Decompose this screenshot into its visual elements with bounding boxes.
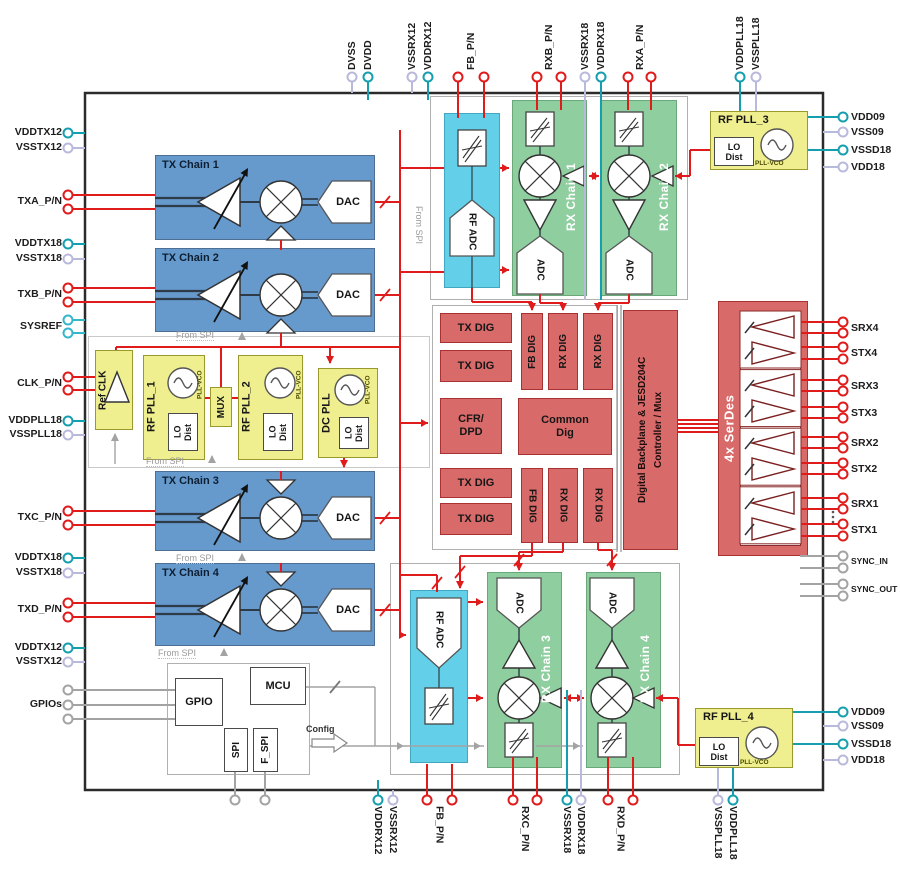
pin-label-vddrx12: VDDRX12 bbox=[370, 806, 386, 870]
dc-pll-label: DC PLL bbox=[320, 370, 334, 456]
ref-clk-label: Ref CLK bbox=[96, 352, 110, 428]
from-spi-label-1: From SPI bbox=[176, 330, 214, 341]
rx-chain-2-label: RX Chain 2 bbox=[655, 102, 673, 292]
gpio-block: GPIO bbox=[175, 678, 223, 726]
pin-label-gpios: GPIOs bbox=[0, 698, 62, 710]
fb-dig-top-label: FB DIG bbox=[527, 335, 538, 369]
dac-1-label: DAC bbox=[326, 192, 370, 212]
from-spi-label-2: From SPI bbox=[146, 456, 184, 467]
pin-label-txc-p-n: TXC_P/N bbox=[0, 511, 62, 523]
pin-label-vddtx18: VDDTX18 bbox=[0, 237, 62, 249]
pin-label-vsstx12: VSSTX12 bbox=[0, 655, 62, 667]
pin-label-vsspll18: VSSPLL18 bbox=[710, 806, 726, 870]
pin-label-vssrx18: VSSRX18 bbox=[577, 4, 593, 70]
rx-dig-bottom-2: RX DIG bbox=[583, 468, 613, 543]
cfr-dpd-label: CFR/ DPD bbox=[458, 413, 484, 438]
serdes-label: 4x SerDes bbox=[719, 301, 739, 556]
pin-label-rxd-p-n: RXD_P/N bbox=[613, 806, 629, 870]
pin-label-srx3: SRX3 bbox=[851, 380, 878, 392]
pin-label-txd-p-n: TXD_P/N bbox=[0, 603, 62, 615]
tx-chain-2-label: TX Chain 2 bbox=[162, 252, 219, 264]
lo-dist-pll2-label: LO Dist bbox=[264, 414, 292, 450]
config-label: Config bbox=[306, 724, 335, 734]
serdes-lanes-box bbox=[740, 311, 801, 546]
mux-block: MUX bbox=[210, 387, 232, 427]
lo-dist-pll4-label: LO Dist bbox=[699, 738, 739, 766]
adc-rx2-label: ADC bbox=[622, 246, 636, 294]
pin-label-vdd09: VDD09 bbox=[851, 111, 885, 123]
pll-vco-pll2-label: PLL-VCO bbox=[294, 363, 304, 407]
adc-rx4-label: ADC bbox=[605, 580, 619, 626]
tx-chain-4-label: TX Chain 4 bbox=[162, 567, 219, 579]
pin-label-sync-out: SYNC_OUT bbox=[851, 584, 897, 594]
pin-label-fb-p-n: FB_P/N bbox=[463, 4, 479, 70]
spi-block: SPI bbox=[224, 728, 248, 772]
rx-dig-top-2-label: RX DIG bbox=[593, 334, 604, 368]
adc-rx1-label: ADC bbox=[533, 246, 547, 294]
lo-dist-dcpll-label: LO Dist bbox=[340, 418, 368, 448]
pin-label-vsstx12: VSSTX12 bbox=[0, 141, 62, 153]
rx-chain-3-label: RX Chain 3 bbox=[537, 574, 555, 764]
pin-label-dvss: DVSS bbox=[344, 4, 360, 70]
rx-dig-top-1: RX DIG bbox=[548, 313, 578, 390]
pin-label-vddrx12: VDDRX12 bbox=[420, 4, 436, 70]
rf-adc-top-block bbox=[444, 113, 500, 288]
pin-label-txb-p-n: TXB_P/N bbox=[0, 288, 62, 300]
pin-label-vssd18: VSSD18 bbox=[851, 144, 891, 156]
rx-chain-4-label: RX Chain 4 bbox=[636, 574, 654, 764]
tx-dig-1: TX DIG bbox=[440, 313, 512, 343]
pin-label-vdd09: VDD09 bbox=[851, 706, 885, 718]
mcu-label: MCU bbox=[265, 680, 290, 693]
fb-dig-top: FB DIG bbox=[521, 313, 543, 390]
pin-label-fb-p-n: FB_P/N bbox=[432, 806, 448, 870]
rf-adc-bottom-label: RF ADC bbox=[432, 600, 446, 660]
rf-transceiver-block-diagram: TX Chain 1 TX Chain 2 TX Chain 3 TX Chai… bbox=[0, 0, 900, 875]
pin-label-vddpll18: VDDPLL18 bbox=[0, 414, 62, 426]
pin-label-sysref: SYSREF bbox=[0, 320, 62, 332]
pin-label-vsspll18: VSSPLL18 bbox=[0, 428, 62, 440]
tx-dig-4: TX DIG bbox=[440, 503, 512, 535]
pin-label-vddrx18: VDDRX18 bbox=[573, 806, 589, 870]
rf-adc-top-label: RF ADC bbox=[465, 204, 479, 260]
pin-label-srx4: SRX4 bbox=[851, 322, 878, 334]
rf-pll-4-label: RF PLL_4 bbox=[703, 711, 783, 724]
tx-dig-2-label: TX DIG bbox=[458, 360, 495, 373]
pll-vco-dcpll-label: PLL-VCO bbox=[363, 368, 373, 412]
pin-label-vddpll18: VDDPLL18 bbox=[732, 4, 748, 70]
mcu-block: MCU bbox=[250, 667, 306, 705]
dac-3-label: DAC bbox=[326, 508, 370, 528]
pll-vco-pll3-label: PLL-VCO bbox=[755, 160, 784, 167]
rx-chain-1-label: RX Chain 1 bbox=[562, 102, 580, 292]
pin-label-dvdd: DVDD bbox=[360, 4, 376, 70]
lo-dist-pll3-label: LO Dist bbox=[714, 138, 754, 166]
fb-dig-bottom-label: FB DIG bbox=[527, 489, 538, 523]
pin-label-vss09: VSS09 bbox=[851, 720, 884, 732]
rf-pll-3-label: RF PLL_3 bbox=[718, 114, 798, 127]
rx-dig-bottom-1: RX DIG bbox=[548, 468, 578, 543]
gpio-label: GPIO bbox=[185, 696, 213, 709]
pin-label-rxc-p-n: RXC_P/N bbox=[517, 806, 533, 870]
from-spi-label-vertical: From SPI bbox=[412, 206, 424, 261]
tx-dig-1-label: TX DIG bbox=[458, 322, 495, 335]
cfr-dpd-block: CFR/ DPD bbox=[440, 398, 502, 454]
pin-label-vdd18: VDD18 bbox=[851, 161, 885, 173]
pll-vco-pll1-label: PLL-VCO bbox=[195, 363, 205, 407]
f-spi-label: F_SPI bbox=[260, 736, 271, 764]
dac-2-label: DAC bbox=[326, 285, 370, 305]
pin-label-vdd18: VDD18 bbox=[851, 754, 885, 766]
rf-pll-1-label: RF PLL_1 bbox=[145, 357, 159, 457]
rx-dig-top-2: RX DIG bbox=[583, 313, 613, 390]
from-spi-label-4: From SPI bbox=[158, 648, 196, 659]
f-spi-block: F_SPI bbox=[253, 728, 278, 772]
tx-dig-4-label: TX DIG bbox=[458, 513, 495, 526]
pin-label-srx1: SRX1 bbox=[851, 498, 878, 510]
pin-label-rxa-p-n: RXA_P/N bbox=[632, 4, 648, 70]
common-dig-label: Common Dig bbox=[541, 414, 589, 439]
common-dig-block: Common Dig bbox=[518, 398, 612, 455]
backplane-label: Digital Backplane & JESD204C Controller … bbox=[626, 312, 676, 548]
tx-chain-1-label: TX Chain 1 bbox=[162, 159, 219, 171]
pin-label-vddpll18: VDDPLL18 bbox=[725, 806, 741, 870]
pin-label-rxb-p-n: RXB_P/N bbox=[541, 4, 557, 70]
pin-label-vddrx18: VDDRX18 bbox=[593, 4, 609, 70]
pin-label-stx1: STX1 bbox=[851, 524, 877, 536]
pin-label-stx3: STX3 bbox=[851, 407, 877, 419]
tx-dig-2: TX DIG bbox=[440, 350, 512, 382]
config-arrow-icon bbox=[312, 734, 347, 752]
pin-label-vssrx12: VSSRX12 bbox=[404, 4, 420, 70]
lo-dist-pll1-label: LO Dist bbox=[169, 414, 197, 450]
tx-dig-3-label: TX DIG bbox=[458, 477, 495, 490]
tx-chain-3-label: TX Chain 3 bbox=[162, 475, 219, 487]
pin-label-vss09: VSS09 bbox=[851, 126, 884, 138]
adc-rx3-label: ADC bbox=[512, 580, 526, 626]
pin-label-stx2: STX2 bbox=[851, 463, 877, 475]
rx-dig-bottom-2-label: RX DIG bbox=[593, 488, 604, 522]
pin-label-vddtx18: VDDTX18 bbox=[0, 551, 62, 563]
from-spi-label-3: From SPI bbox=[176, 553, 214, 564]
pin-label-vsspll18: VSSPLL18 bbox=[748, 4, 764, 70]
pin-label-vddtx12: VDDTX12 bbox=[0, 641, 62, 653]
dac-4-label: DAC bbox=[326, 600, 370, 620]
pll-vco-pll4-label: PLL-VCO bbox=[740, 759, 769, 766]
tx-dig-3: TX DIG bbox=[440, 468, 512, 498]
rx-dig-bottom-1-label: RX DIG bbox=[558, 488, 569, 522]
pin-label-vssd18: VSSD18 bbox=[851, 738, 891, 750]
pin-label-vsstx18: VSSTX18 bbox=[0, 566, 62, 578]
pin-label-clk-p-n: CLK_P/N bbox=[0, 377, 62, 389]
pin-label-vssrx12: VSSRX12 bbox=[385, 806, 401, 870]
fb-dig-bottom: FB DIG bbox=[521, 468, 543, 543]
rx-dig-top-1-label: RX DIG bbox=[558, 334, 569, 368]
pin-label-vsstx18: VSSTX18 bbox=[0, 252, 62, 264]
mux-label: MUX bbox=[216, 396, 227, 418]
spi-label: SPI bbox=[231, 742, 242, 758]
pin-label-txa-p-n: TXA_P/N bbox=[0, 195, 62, 207]
pin-label-srx2: SRX2 bbox=[851, 437, 878, 449]
pin-label-sync-in: SYNC_IN bbox=[851, 556, 888, 566]
rf-pll-2-label: RF PLL_2 bbox=[240, 357, 254, 457]
pin-label-stx4: STX4 bbox=[851, 347, 877, 359]
pin-label-vddtx12: VDDTX12 bbox=[0, 126, 62, 138]
